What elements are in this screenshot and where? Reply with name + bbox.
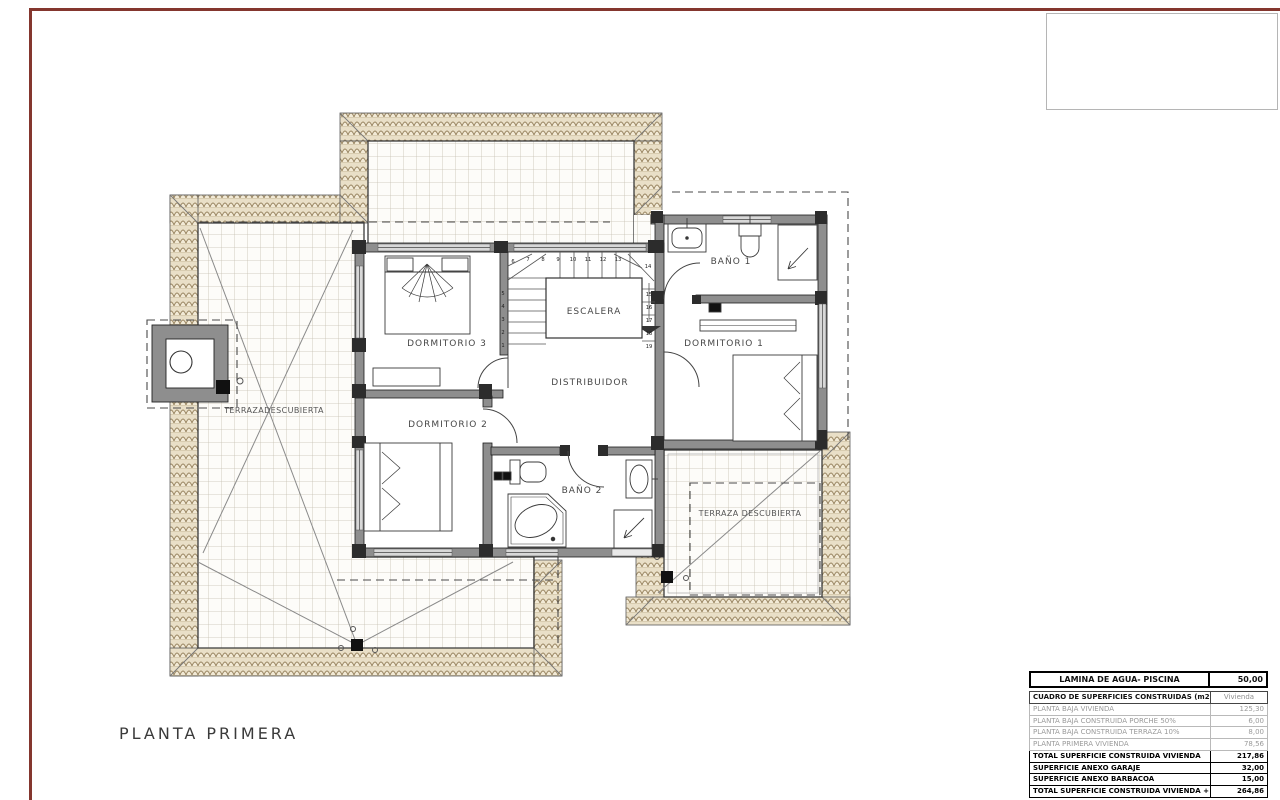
svg-text:13: 13: [615, 257, 622, 263]
surface-row-label: SUPERFICIE ANEXO BARBACOA: [1030, 774, 1211, 786]
surfaces-table-row: TOTAL SUPERFICIE CONSTRUIDA VIVIENDA + A…: [1030, 786, 1268, 798]
wall-fixture: [494, 472, 502, 480]
plan-title: PLANTA PRIMERA: [119, 724, 298, 743]
svg-text:19: 19: [646, 344, 653, 350]
svg-text:17: 17: [646, 318, 653, 324]
surface-row-value: 15,00: [1211, 774, 1268, 786]
svg-text:6: 6: [511, 259, 514, 265]
bed-dormitorio1: [733, 355, 817, 441]
wall-fixture: [503, 472, 511, 480]
surfaces-table-row: PLANTA BAJA VIVIENDA125,30: [1030, 703, 1268, 715]
surface-row-label: TOTAL SUPERFICIE CONSTRUIDA VIVIENDA + A…: [1030, 786, 1211, 798]
svg-text:1: 1: [501, 343, 504, 349]
surfaces-table-row: TOTAL SUPERFICIE CONSTRUIDA VIVIENDA217,…: [1030, 750, 1268, 762]
svg-text:3: 3: [501, 317, 504, 323]
surface-row-value: 125,30: [1211, 703, 1268, 715]
table-row: LAMINA DE AGUA- PISCINA 50,00: [1030, 672, 1267, 687]
surface-row-label: TOTAL SUPERFICIE CONSTRUIDA VIVIENDA: [1030, 750, 1211, 762]
surface-row-label: PLANTA BAJA CONSTRUIDA TERRAZA 10%: [1030, 727, 1211, 739]
surface-row-value: 217,86: [1211, 750, 1268, 762]
surfaces-table-row: PLANTA PRIMERA VIVIENDA78,56: [1030, 739, 1268, 751]
closet-bano2: [614, 510, 652, 548]
room-label-terraza-izquierda: TERRAZADESCUBIERTA: [223, 406, 324, 415]
water-table-value: 50,00: [1209, 672, 1267, 687]
svg-text:18: 18: [646, 331, 653, 337]
room-label-dormitorio2: DORMITORIO 2: [408, 420, 488, 430]
svg-text:16: 16: [646, 305, 653, 311]
page: { "page": { "title": "PLANTA PRIMERA", "…: [0, 0, 1280, 800]
water-table-label: LAMINA DE AGUA- PISCINA: [1030, 672, 1209, 687]
area-tables: LAMINA DE AGUA- PISCINA 50,00 CUADRO DE …: [1029, 671, 1268, 798]
room-label-bano2: BAÑO 2: [562, 485, 603, 496]
svg-text:15: 15: [646, 292, 653, 298]
closet-bano1: [778, 225, 817, 280]
surfaces-table-row: PLANTA BAJA CONSTRUIDA PORCHE 50%6,00: [1030, 715, 1268, 727]
surface-row-label: SUPERFICIE ANEXO GARAJE: [1030, 762, 1211, 774]
svg-text:5: 5: [501, 291, 504, 297]
surface-row-value: 6,00: [1211, 715, 1268, 727]
svg-text:12: 12: [600, 257, 607, 263]
surfaces-table-col: Vivienda: [1211, 692, 1268, 704]
surfaces-table-title: CUADRO DE SUPERFICIES CONSTRUIDAS (m2): [1030, 692, 1211, 704]
water-area-table: LAMINA DE AGUA- PISCINA 50,00: [1029, 671, 1268, 688]
surface-row-label: PLANTA BAJA VIVIENDA: [1030, 703, 1211, 715]
bed-dormitorio2: [364, 443, 452, 531]
built-surfaces-table: CUADRO DE SUPERFICIES CONSTRUIDAS (m2) V…: [1029, 691, 1268, 798]
svg-text:11: 11: [585, 257, 592, 263]
surfaces-table-row: PLANTA BAJA CONSTRUIDA TERRAZA 10%8,00: [1030, 727, 1268, 739]
surface-row-label: PLANTA BAJA CONSTRUIDA PORCHE 50%: [1030, 715, 1211, 727]
dresser-dormitorio3: [373, 368, 440, 386]
surface-row-value: 264,86: [1211, 786, 1268, 798]
svg-text:10: 10: [570, 257, 577, 263]
surfaces-table-row: SUPERFICIE ANEXO BARBACOA15,00: [1030, 774, 1268, 786]
svg-text:7: 7: [526, 257, 529, 263]
svg-text:14: 14: [645, 264, 652, 270]
svg-text:8: 8: [541, 257, 544, 263]
room-label-escalera: ESCALERA: [567, 307, 622, 317]
surface-row-label: PLANTA PRIMERA VIVIENDA: [1030, 739, 1211, 751]
bed-dormitorio3: [385, 256, 470, 334]
svg-text:9: 9: [556, 257, 559, 263]
surfaces-table-row: SUPERFICIE ANEXO GARAJE32,00: [1030, 762, 1268, 774]
svg-text:2: 2: [501, 330, 504, 336]
room-label-bano1: BAÑO 1: [711, 256, 752, 267]
room-label-distribuidor: DISTRIBUIDOR: [551, 378, 628, 388]
room-label-dormitorio1: DORMITORIO 1: [684, 339, 764, 349]
room-label-terraza-derecha: TERRAZA DESCUBIERTA: [698, 509, 802, 518]
surface-row-value: 8,00: [1211, 727, 1268, 739]
toilet-bano2: [510, 460, 546, 484]
surface-row-value: 32,00: [1211, 762, 1268, 774]
terrace-right: [664, 450, 822, 597]
table-header-row: CUADRO DE SUPERFICIES CONSTRUIDAS (m2) V…: [1030, 692, 1268, 704]
room-label-dormitorio3: DORMITORIO 3: [407, 339, 487, 349]
surface-row-value: 78,56: [1211, 739, 1268, 751]
terrace-top: [368, 141, 634, 250]
